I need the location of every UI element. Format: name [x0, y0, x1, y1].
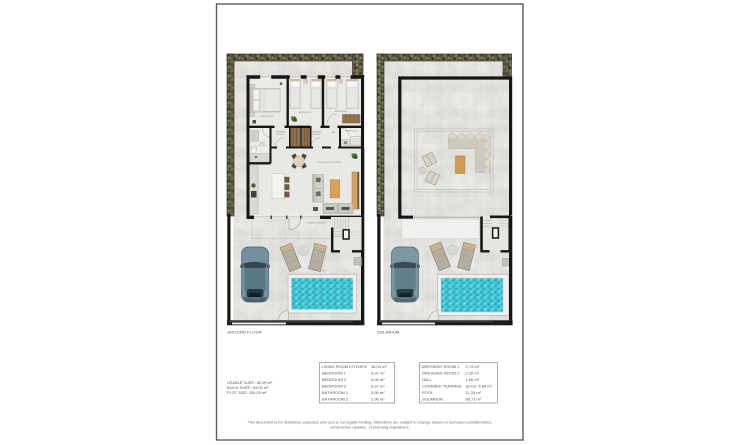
svg-text:3,90 m²: 3,90 m²: [371, 390, 385, 395]
svg-text:80,73 m²: 80,73 m²: [466, 397, 482, 402]
svg-text:LIVING ROOM KITCHEN: LIVING ROOM KITCHEN: [322, 364, 367, 369]
svg-text:BEDROOM 2: BEDROOM 2: [299, 112, 312, 114]
svg-text:construction updates, or plann: construction updates, or planning regula…: [330, 425, 409, 430]
svg-text:COVERED TERRACE: COVERED TERRACE: [306, 222, 327, 225]
svg-text:2,20 m²: 2,20 m²: [466, 371, 480, 376]
svg-text:11,25 m²: 11,25 m²: [466, 390, 482, 395]
svg-text:(8,02)· 4,85 m²: (8,02)· 4,85 m²: [466, 384, 493, 389]
svg-text:ROOM 1: ROOM 1: [277, 134, 284, 136]
svg-text:POOL: POOL: [422, 390, 434, 395]
svg-text:SOLARIUM: SOLARIUM: [377, 330, 400, 335]
svg-text:1,66 m²: 1,66 m²: [466, 377, 480, 382]
svg-text:DRESSING ROOM 2: DRESSING ROOM 2: [422, 371, 461, 376]
svg-text:ROOM 1: ROOM 1: [259, 145, 268, 147]
svg-text:9,07 m²: 9,07 m²: [371, 371, 385, 376]
svg-text:9,37 m²: 9,37 m²: [371, 384, 385, 389]
svg-text:DRESSING ROOM 1: DRESSING ROOM 1: [422, 364, 461, 369]
svg-text:SOLARIUM: SOLARIUM: [422, 397, 443, 402]
svg-text:BEDROOM 2: BEDROOM 2: [322, 377, 347, 382]
svg-text:HALL: HALL: [422, 377, 433, 382]
svg-text:BEDROOM 3: BEDROOM 3: [335, 111, 348, 113]
svg-text:ROOM 2: ROOM 2: [312, 134, 319, 136]
svg-text:HALL: HALL: [331, 131, 336, 134]
svg-text:GROUND FLOOR: GROUND FLOOR: [227, 330, 262, 335]
svg-text:2,74 m²: 2,74 m²: [466, 364, 480, 369]
svg-text:COVERED TERRACE: COVERED TERRACE: [422, 384, 462, 389]
svg-text:BEDROOM 1: BEDROOM 1: [322, 371, 347, 376]
svg-text:POOL: POOL: [321, 271, 327, 273]
svg-text:BATHROOM 1: BATHROOM 1: [322, 390, 349, 395]
svg-text:38,04 m²: 38,04 m²: [371, 364, 387, 369]
svg-text:BEDROOM 1: BEDROOM 1: [261, 116, 274, 118]
svg-text:BATHROOM 2: BATHROOM 2: [322, 397, 349, 402]
svg-text:9,06 m²: 9,06 m²: [371, 377, 385, 382]
svg-text:2,96 m²: 2,96 m²: [371, 397, 385, 402]
svg-text:LIVING ROOM KITCHEN: LIVING ROOM KITCHEN: [317, 162, 341, 164]
svg-text:BEDROOM 3: BEDROOM 3: [322, 384, 347, 389]
svg-text:PLOT SIZE: 200,00 m²: PLOT SIZE: 200,00 m²: [227, 390, 267, 395]
svg-text:BATHROOM 2: BATHROOM 2: [345, 130, 357, 133]
